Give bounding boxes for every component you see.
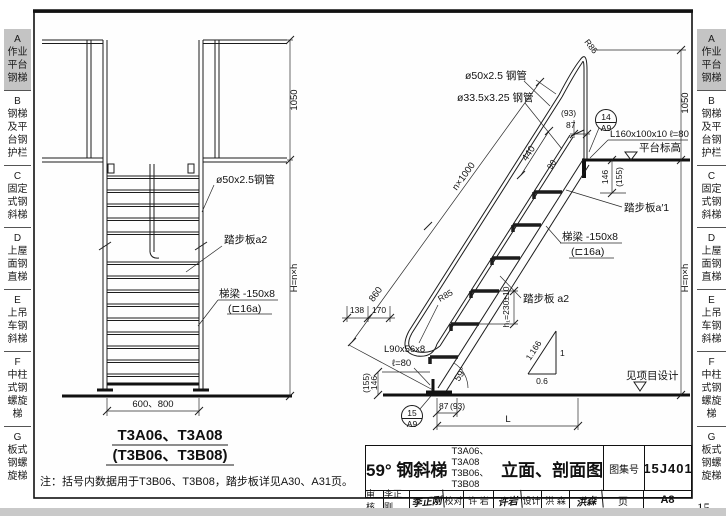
dim-overall-height: H=n×h [289, 264, 300, 293]
elevation-caption-line2: (T3B06、T3B08) [112, 447, 227, 464]
dim-base-rise: 146 [369, 376, 379, 390]
title-prefix: 59° 钢斜梯 [366, 456, 447, 481]
proof-name: 许 岩 [464, 491, 494, 509]
atlas-number-value: 15J401 [645, 446, 691, 490]
dim-first-rise-paren: (155) [614, 167, 624, 187]
base-angle-label-line1: L90x56x8 [384, 344, 425, 355]
page-label: 页 [603, 491, 644, 509]
dim-first-rise: 146 [600, 170, 610, 184]
drawing-sheet: 1050 H=n×h 600、800 ø50x2.5钢管 踏步板a2 梯梁 -1… [0, 0, 726, 516]
design-name: 洪 森 [542, 491, 570, 509]
scan-edge [0, 508, 726, 516]
dim-overall-height: H=n×h [680, 264, 691, 293]
dim-length: L [505, 414, 510, 425]
rail-pipe-label: ø50x2.5 钢管 [465, 69, 527, 82]
stringer-label-line1: 梯梁 -150x8 [219, 287, 275, 300]
tread-label: 踏步板 a2 [523, 292, 569, 305]
page-value: A8 [644, 491, 691, 509]
footnote: 注：括号内数据用于T3B06、T3B08，踏步板详见A30、A31页。 [40, 473, 370, 489]
dim-run2: 170 [372, 305, 386, 315]
detail-bottom-page: A9 [407, 419, 418, 429]
slope-rise: 1 [560, 348, 565, 358]
dim-ladder-width: 600、800 [132, 399, 173, 410]
dim-top-offset: 87 [566, 120, 576, 130]
tread-label: 踏步板a2 [224, 233, 267, 246]
dim-1050: 1050 [680, 92, 691, 113]
dim-rise: h₁=230±10 [501, 286, 511, 327]
atlas-number-label: 图集号 [604, 446, 645, 490]
top-tread-label: 踏步板a′1 [624, 201, 669, 214]
dim-top-offset-paren: (93) [561, 108, 576, 118]
stringer-label-line2: (⊏16a) [571, 246, 604, 258]
dim-1050: 1050 [289, 89, 300, 110]
title-block: 59° 钢斜梯 T3A06、T3A08 T3B06、T3B08 立面、剖面图 图… [365, 445, 692, 498]
dim-base-offset-paren: (93) [450, 401, 465, 411]
detail-top-number: 14 [601, 112, 611, 122]
dim-run: 138 [350, 305, 364, 315]
ground-level-label: 见项目设计 [626, 369, 679, 382]
dim-base-offset: 87 [439, 401, 449, 411]
proof-label: 校对 [444, 491, 464, 509]
review-name: 李正刚 [384, 491, 410, 509]
mid-rail-pipe-label: ø33.5x3.25 钢管 [457, 91, 533, 104]
stringer-label-line1: 梯梁 -150x8 [562, 230, 618, 243]
review-label: 审核 [366, 491, 384, 509]
design-label: 设计 [522, 491, 542, 509]
title-model-numbers: T3A06、T3A08 T3B06、T3B08 [451, 446, 497, 490]
top-angle-label: L160x100x10 ℓ=80 [610, 129, 689, 140]
elevation-caption-line1: T3A06、T3A08 [117, 427, 222, 444]
rail-pipe-label: ø50x2.5钢管 [216, 173, 275, 186]
detail-bottom-number: 15 [407, 408, 417, 418]
base-angle-label-line2: ℓ=80 [392, 358, 411, 369]
stringer-label-line2: (⊏16a) [228, 303, 261, 315]
slope-run: 0.6 [536, 376, 548, 386]
platform-level-label: 平台标高 [639, 141, 681, 154]
title-suffix: 立面、剖面图 [501, 456, 603, 481]
drawing-title: 59° 钢斜梯 T3A06、T3A08 T3B06、T3B08 立面、剖面图 [366, 446, 604, 490]
